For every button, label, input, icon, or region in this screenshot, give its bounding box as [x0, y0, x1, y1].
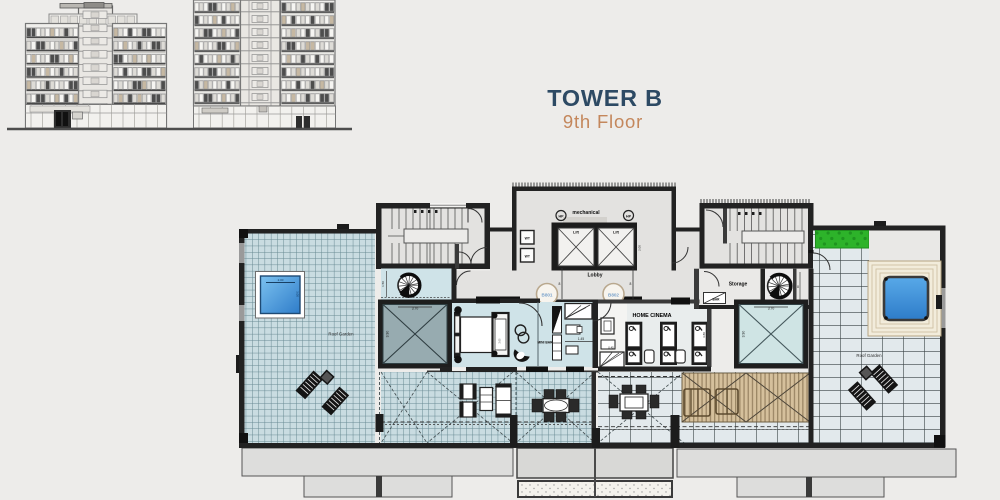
- svg-text:3.90: 3.90: [386, 331, 390, 338]
- svg-text:Lobby: Lobby: [588, 273, 603, 279]
- svg-text:B802: B802: [608, 293, 619, 298]
- svg-text:1.45: 1.45: [578, 337, 584, 341]
- svg-text:HOME CINEMA: HOME CINEMA: [633, 313, 672, 319]
- svg-text:Lift: Lift: [613, 231, 620, 235]
- svg-text:3.80: 3.80: [702, 332, 706, 338]
- svg-text:B801: B801: [542, 293, 553, 298]
- svg-text:3.90: 3.90: [742, 331, 746, 338]
- svg-text:HP: HP: [626, 215, 632, 219]
- svg-text:Roof Garden: Roof Garden: [856, 353, 882, 358]
- svg-text:mechanical: mechanical: [572, 210, 600, 216]
- svg-text:0.45: 0.45: [608, 346, 614, 350]
- svg-text:BAR: BAR: [713, 298, 721, 302]
- svg-text:MINI BAR: MINI BAR: [537, 341, 553, 345]
- svg-text:HP: HP: [559, 215, 565, 219]
- svg-text:8: 8: [630, 282, 632, 286]
- svg-text:2.00: 2.00: [278, 278, 284, 282]
- svg-text:8: 8: [797, 285, 799, 289]
- svg-text:1.50: 1.50: [381, 281, 385, 287]
- svg-text:Storage: Storage: [729, 282, 748, 288]
- svg-text:3.60: 3.60: [499, 338, 502, 343]
- svg-text:TOWER B: TOWER B: [547, 85, 663, 111]
- svg-text:WT: WT: [525, 237, 531, 241]
- svg-text:2.00: 2.00: [638, 245, 642, 251]
- svg-text:Roof Garden: Roof Garden: [328, 332, 354, 337]
- svg-text:3.00: 3.00: [296, 291, 300, 297]
- svg-text:2.00: 2.00: [552, 245, 556, 251]
- svg-text:WT: WT: [525, 255, 531, 259]
- svg-text:9th Floor: 9th Floor: [563, 111, 643, 132]
- svg-text:Lift: Lift: [573, 231, 580, 235]
- svg-text:8: 8: [559, 282, 561, 286]
